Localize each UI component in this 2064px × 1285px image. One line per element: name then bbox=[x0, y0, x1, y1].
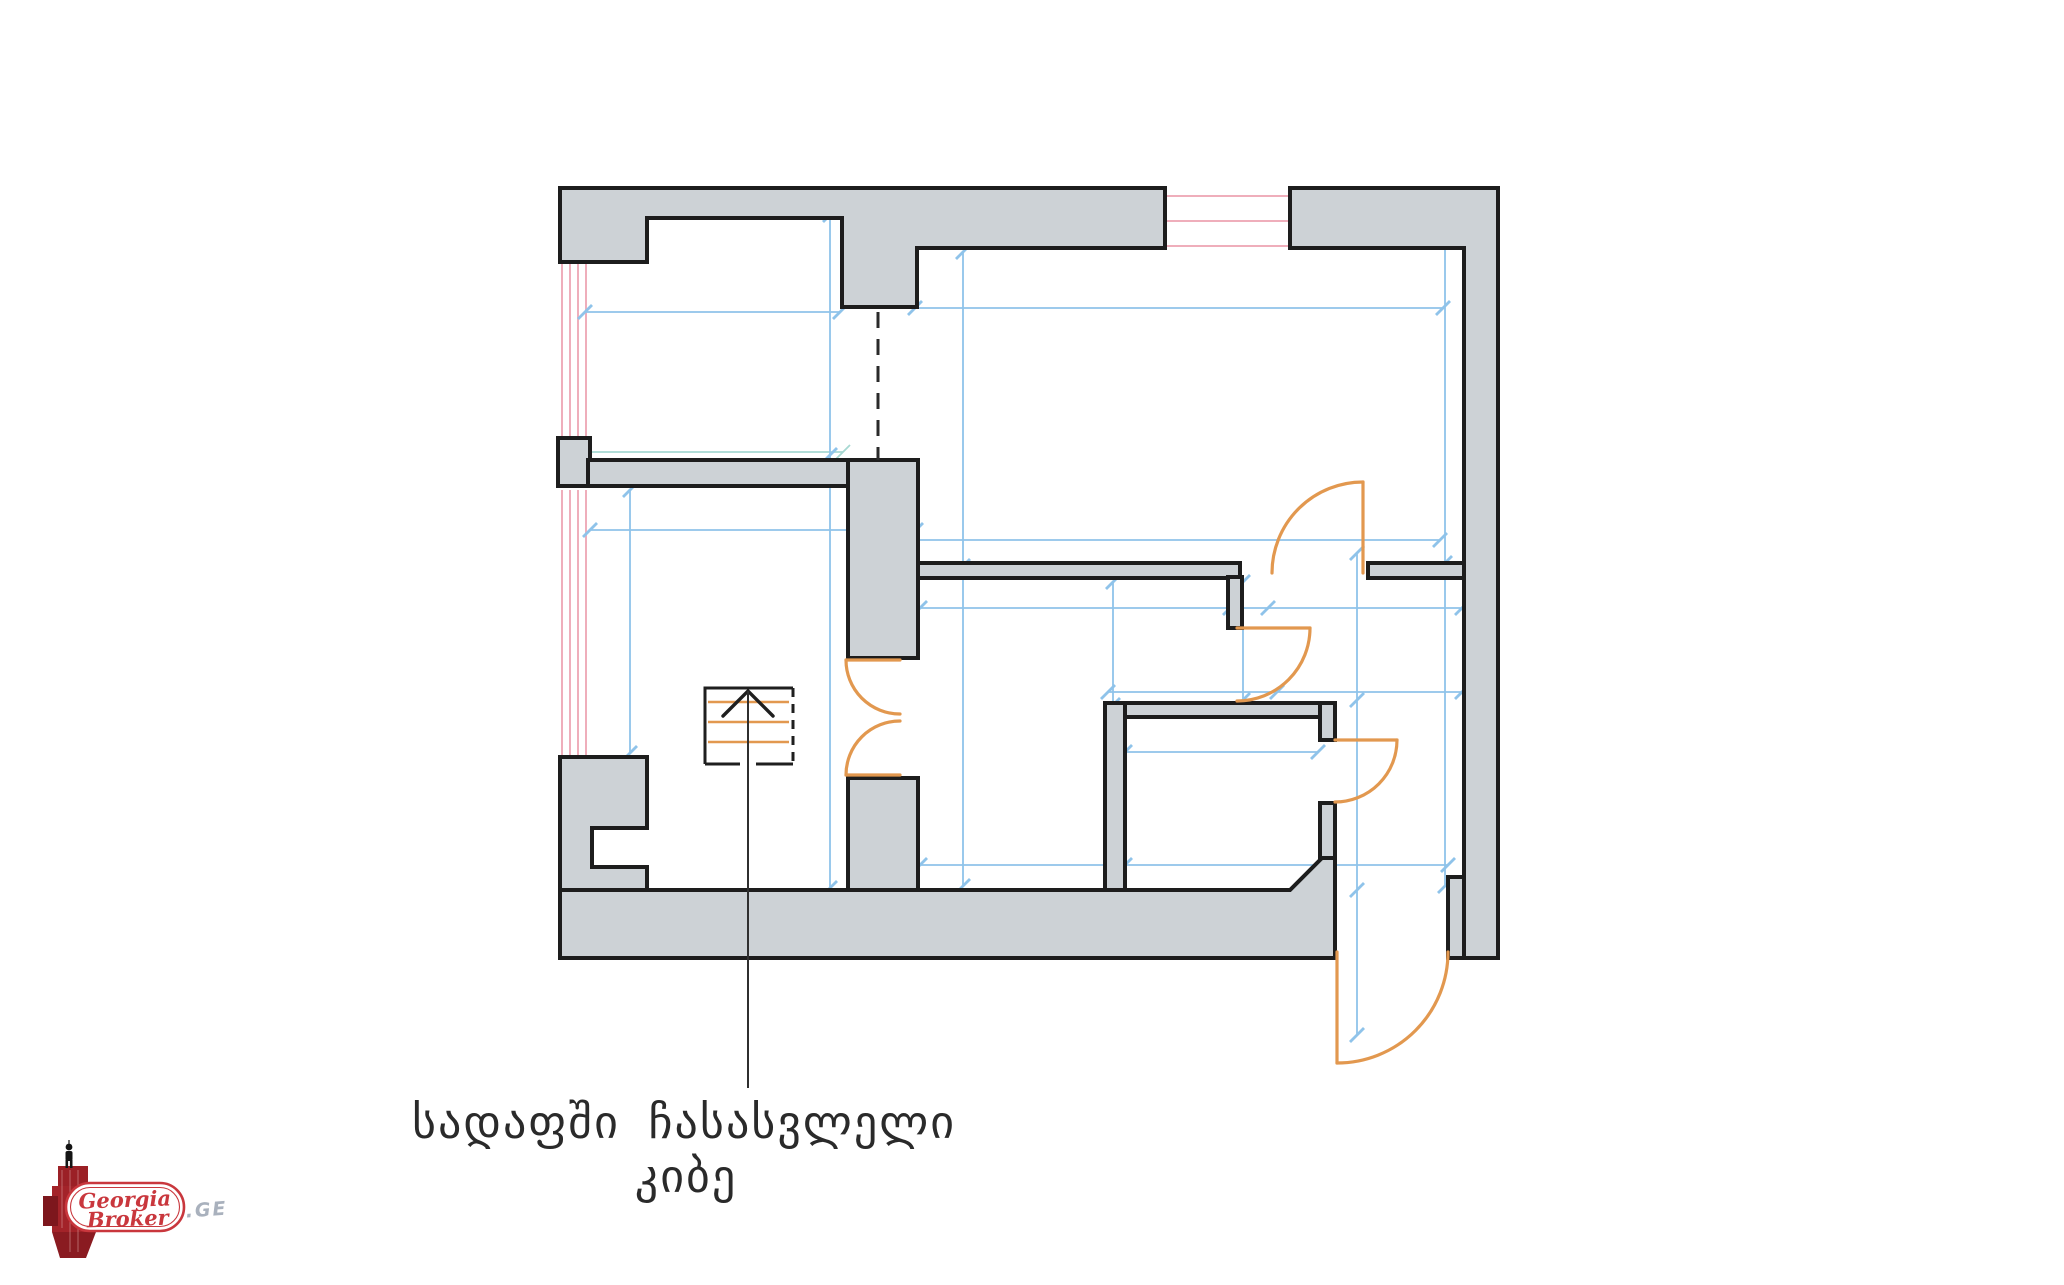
door-bathroom bbox=[1335, 740, 1397, 802]
wall-corridor-top bbox=[918, 563, 1240, 578]
wall-bath-right-lower bbox=[1320, 803, 1335, 858]
door-corridor bbox=[1237, 628, 1310, 701]
wall-bath-right-upper bbox=[1320, 703, 1335, 740]
wall-stairhall-right-upper bbox=[848, 460, 918, 658]
door-swing-arc bbox=[846, 660, 900, 714]
wall-room1-bottom bbox=[588, 460, 848, 486]
wall-stairhall-right-lower bbox=[848, 778, 918, 892]
scanned-floorplan-page: სადაფში ჩასასვლელი კიბე Georgia Broker .… bbox=[0, 0, 2064, 1285]
door-swing-arc bbox=[1337, 952, 1448, 1063]
person-icon bbox=[66, 1140, 73, 1168]
caption-line-2: კიბე bbox=[635, 1149, 737, 1203]
door-swing-arc bbox=[1237, 628, 1310, 701]
wall-bath-left bbox=[1105, 703, 1125, 890]
georgia-broker-logo: Georgia Broker .GE bbox=[43, 1140, 228, 1258]
brand-word-2: Broker bbox=[85, 1205, 171, 1233]
wall-bottom-left-pier bbox=[560, 757, 647, 892]
door-swing-arc bbox=[1335, 740, 1397, 802]
door-double-stairhall bbox=[846, 660, 900, 775]
wall-corridor-stub bbox=[1228, 577, 1242, 628]
domain-suffix: .GE bbox=[185, 1198, 228, 1223]
wall-left-pier bbox=[558, 438, 590, 486]
wall-top-left bbox=[560, 188, 1165, 307]
wall-corridor-top-right bbox=[1368, 563, 1464, 578]
wall-entry-jamb bbox=[1448, 877, 1464, 958]
wall-bath-top bbox=[1105, 703, 1335, 717]
dimension-line-alt bbox=[576, 445, 850, 459]
door-swing-arc bbox=[846, 721, 900, 775]
floorplan-drawing: სადაფში ჩასასვლელი კიბე Georgia Broker .… bbox=[0, 0, 2064, 1285]
caption-line-1: სადაფში ჩასასვლელი bbox=[412, 1095, 956, 1149]
door-entry-exterior bbox=[1337, 952, 1448, 1063]
wall-bottom bbox=[560, 858, 1335, 958]
